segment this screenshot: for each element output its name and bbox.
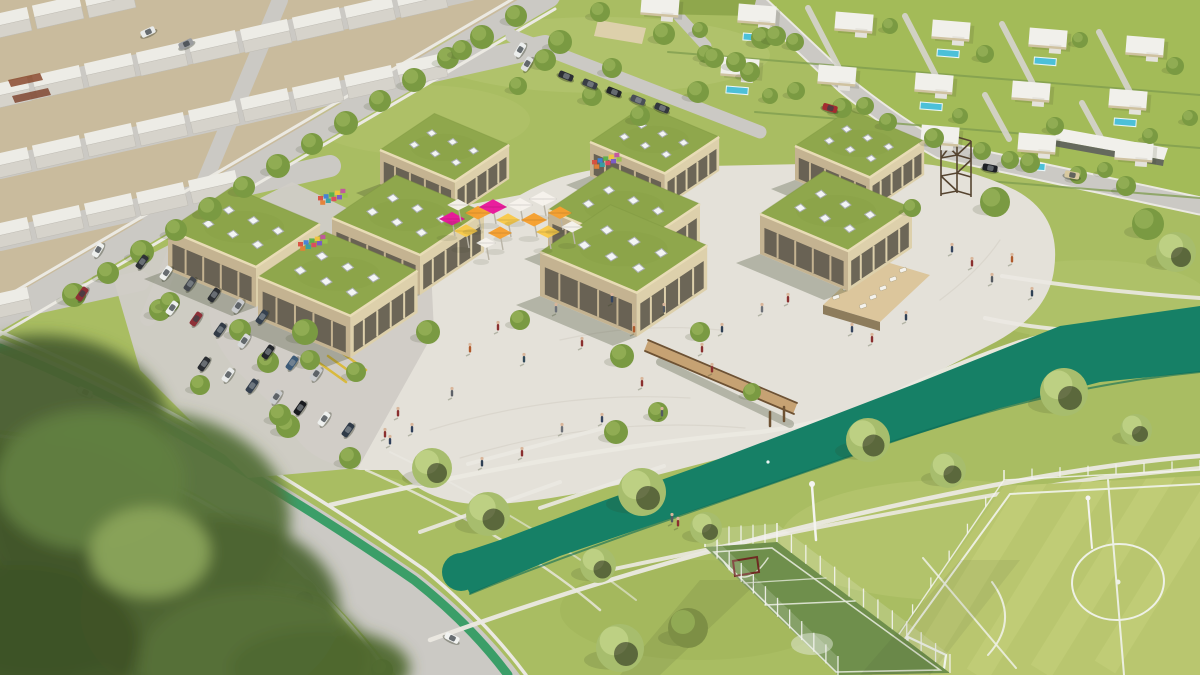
- bird: [766, 460, 769, 463]
- person-body: [661, 410, 663, 417]
- person-body: [1031, 290, 1033, 297]
- person-body: [641, 380, 643, 387]
- person-head: [610, 293, 613, 296]
- person-head: [496, 321, 499, 324]
- canopy-highlight: [692, 323, 704, 335]
- person-head: [480, 457, 483, 460]
- canopy-highlight: [341, 448, 354, 461]
- play-tile: [594, 164, 599, 168]
- canopy-shade: [614, 642, 638, 666]
- canopy-shade: [702, 524, 718, 540]
- canopy-highlight: [404, 69, 418, 83]
- canopy-highlight: [167, 220, 180, 233]
- pool: [937, 49, 959, 58]
- play-tile: [592, 160, 597, 164]
- person-body: [677, 520, 679, 527]
- person-body: [871, 336, 873, 343]
- canopy-shade: [636, 486, 660, 510]
- canopy-highlight: [268, 155, 282, 169]
- play-tile: [598, 158, 603, 162]
- play-tile: [318, 196, 323, 200]
- person-head: [662, 303, 665, 306]
- roof-texture: [621, 126, 689, 153]
- canopy-highlight: [336, 112, 350, 126]
- person-head: [786, 293, 789, 296]
- person-body: [787, 296, 789, 303]
- person-head: [700, 343, 703, 346]
- canopy-highlight: [1073, 33, 1083, 43]
- play-tile: [335, 191, 340, 195]
- canopy-highlight: [536, 50, 549, 63]
- person-body: [397, 410, 399, 417]
- person-body: [561, 426, 563, 433]
- canopy-highlight: [1098, 163, 1108, 173]
- person-body: [384, 431, 386, 438]
- play-tile: [611, 159, 616, 163]
- roof-texture: [296, 257, 380, 291]
- canopy-highlight: [1002, 152, 1013, 163]
- canopy-highlight: [1022, 154, 1034, 166]
- canopy-highlight: [857, 98, 868, 109]
- person-body: [451, 390, 453, 397]
- canal-end: [442, 553, 480, 591]
- play-tile: [617, 157, 622, 161]
- canopy-highlight: [953, 109, 963, 119]
- person-head: [950, 243, 953, 246]
- roof-texture: [411, 134, 479, 161]
- canopy-highlight: [926, 129, 938, 141]
- canopy-highlight: [472, 26, 486, 40]
- roof-texture: [580, 231, 668, 266]
- person-body: [671, 516, 673, 523]
- pool: [726, 86, 748, 95]
- canopy-highlight: [982, 189, 1000, 207]
- canopy-highlight: [693, 23, 703, 33]
- canopy-shade: [944, 466, 962, 484]
- person-body: [389, 438, 391, 445]
- floodlight-head: [809, 481, 815, 487]
- play-tile: [337, 195, 342, 199]
- center-spot: [1116, 580, 1121, 585]
- person-head: [396, 407, 399, 410]
- canopy-shade: [427, 463, 447, 483]
- play-tile: [309, 238, 314, 242]
- canopy-highlight: [655, 24, 668, 37]
- canopy-highlight: [977, 46, 988, 57]
- person-body: [721, 326, 723, 333]
- play-tile: [331, 197, 336, 201]
- play-tile: [609, 155, 614, 159]
- canopy-highlight: [689, 82, 702, 95]
- person-head: [660, 407, 663, 410]
- umbrella-shadow: [451, 247, 470, 253]
- aerial-architectural-rendering: [0, 0, 1200, 675]
- canopy-highlight: [592, 3, 604, 15]
- canopy-highlight: [744, 384, 755, 395]
- aerial-render-stage: [0, 0, 1200, 675]
- canopy-shade: [1058, 386, 1082, 410]
- person-head: [600, 413, 603, 416]
- canopy-highlight: [454, 41, 466, 53]
- canopy-highlight: [1047, 118, 1058, 129]
- canopy-highlight: [1183, 111, 1193, 121]
- play-tile: [317, 241, 322, 245]
- play-tile: [324, 194, 329, 198]
- canopy-highlight: [650, 403, 662, 415]
- person-head: [1010, 253, 1013, 256]
- canopy-highlight: [768, 27, 780, 39]
- canopy-highlight: [974, 143, 985, 154]
- person-body: [761, 306, 763, 313]
- play-tile: [311, 243, 316, 247]
- canopy-highlight: [294, 320, 310, 336]
- person-head: [720, 323, 723, 326]
- canopy-highlight: [787, 34, 798, 45]
- canopy-highlight: [612, 345, 626, 359]
- canopy-highlight: [1134, 210, 1153, 229]
- roof-texture: [368, 199, 448, 231]
- person-head: [904, 311, 907, 314]
- canopy-shade: [863, 435, 885, 457]
- person-head: [410, 423, 413, 426]
- person-body: [851, 326, 853, 333]
- person-body: [497, 324, 499, 331]
- canopy-highlight: [271, 405, 284, 418]
- canopy-highlight: [418, 321, 432, 335]
- person-body: [601, 416, 603, 423]
- person-body: [469, 346, 471, 353]
- canopy-highlight: [671, 610, 695, 634]
- canopy-highlight: [348, 363, 360, 375]
- roof-texture: [826, 130, 894, 157]
- person-body: [521, 450, 523, 457]
- canopy-highlight: [632, 107, 644, 119]
- umbrella-shadow: [473, 259, 489, 265]
- play-tile: [298, 242, 303, 246]
- person-body: [971, 260, 973, 267]
- pool: [1034, 57, 1056, 66]
- canopy-highlight: [880, 114, 891, 125]
- person-body: [581, 340, 583, 347]
- person-head: [670, 513, 673, 516]
- person-head: [580, 337, 583, 340]
- play-tile: [603, 156, 608, 160]
- pool: [920, 102, 942, 111]
- play-tile: [323, 239, 328, 243]
- person-head: [710, 363, 713, 366]
- play-tile: [605, 161, 610, 165]
- person-body: [701, 346, 703, 353]
- person-head: [383, 428, 386, 431]
- person-body: [555, 306, 557, 313]
- canopy-highlight: [1143, 129, 1153, 139]
- person-body: [611, 296, 613, 303]
- canopy-shade: [483, 509, 505, 531]
- canopy-highlight: [302, 351, 314, 363]
- play-tile: [306, 245, 311, 249]
- canopy-highlight: [728, 53, 740, 65]
- person-head: [520, 447, 523, 450]
- canopy-shade: [1132, 426, 1148, 442]
- canopy-highlight: [904, 200, 915, 211]
- play-tile: [320, 200, 325, 204]
- play-tile: [326, 199, 331, 203]
- person-body: [663, 306, 665, 313]
- play-tile: [320, 235, 325, 239]
- person-body: [951, 246, 953, 253]
- person-head: [676, 517, 679, 520]
- person-body: [991, 276, 993, 283]
- canopy-highlight: [606, 421, 620, 435]
- canopy-highlight: [192, 376, 204, 388]
- play-tile: [614, 153, 619, 157]
- person-head: [870, 333, 873, 336]
- canopy-highlight: [763, 89, 773, 99]
- play-tile: [304, 240, 309, 244]
- person-head: [632, 323, 635, 326]
- person-head: [990, 273, 993, 276]
- play-tile: [600, 163, 605, 167]
- person-head: [388, 435, 391, 438]
- person-head: [640, 377, 643, 380]
- person-body: [523, 356, 525, 363]
- canopy-highlight: [788, 83, 799, 94]
- person-head: [1030, 287, 1033, 290]
- play-tile: [340, 189, 345, 193]
- canopy-highlight: [550, 31, 564, 45]
- canopy-highlight: [883, 19, 893, 29]
- canopy-highlight: [1167, 58, 1178, 69]
- canopy-highlight: [604, 59, 616, 71]
- person-head: [522, 353, 525, 356]
- person-head: [760, 303, 763, 306]
- canopy-highlight: [200, 198, 214, 212]
- canopy-highlight: [235, 177, 248, 190]
- canopy-highlight: [1118, 177, 1130, 189]
- umbrella-shadow: [545, 229, 564, 235]
- person-head: [468, 343, 471, 346]
- canopy-highlight: [512, 311, 524, 323]
- canopy-shade: [594, 561, 612, 579]
- canopy-highlight: [303, 134, 316, 147]
- play-tile: [329, 192, 334, 196]
- person-body: [1011, 256, 1013, 263]
- person-head: [554, 303, 557, 306]
- umbrella-shadow: [533, 248, 552, 254]
- person-body: [633, 326, 635, 333]
- canopy-shade: [1171, 247, 1191, 267]
- umbrella-shadow: [444, 221, 462, 227]
- floodlight-head: [1086, 496, 1091, 501]
- umbrella-shadow: [558, 243, 576, 249]
- canopy-highlight: [99, 263, 112, 276]
- person-head: [560, 423, 563, 426]
- roof-texture: [796, 195, 876, 227]
- canopy-highlight: [507, 6, 520, 19]
- person-head: [450, 387, 453, 390]
- person-body: [411, 426, 413, 433]
- canopy-highlight: [706, 49, 718, 61]
- play-tile: [315, 237, 320, 241]
- play-tile: [300, 246, 305, 250]
- person-body: [481, 460, 483, 467]
- blurred-canopy: [90, 507, 210, 597]
- canopy-highlight: [371, 91, 384, 104]
- person-head: [850, 323, 853, 326]
- canopy-highlight: [510, 78, 521, 89]
- canopy-highlight: [132, 241, 146, 255]
- play-tile: [343, 193, 348, 197]
- person-body: [905, 314, 907, 321]
- canopy-highlight: [231, 320, 244, 333]
- pool: [1114, 118, 1136, 127]
- person-body: [711, 366, 713, 373]
- person-head: [970, 257, 973, 260]
